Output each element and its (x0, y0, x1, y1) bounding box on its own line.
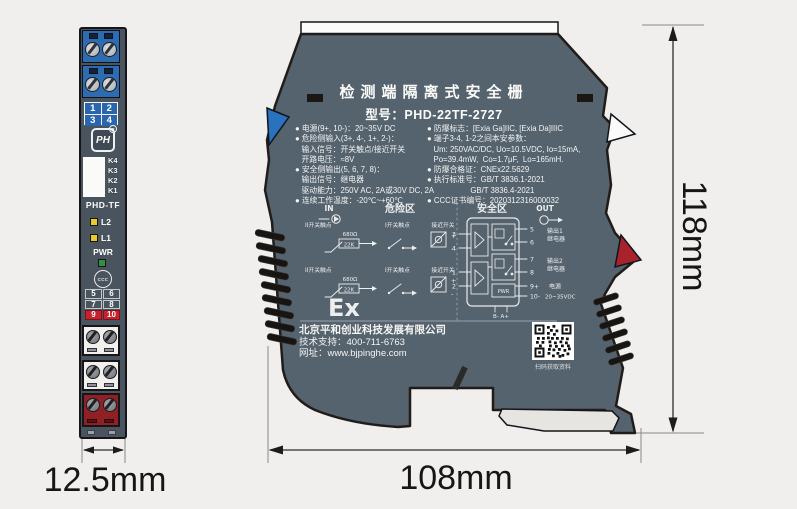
din-tab (87, 430, 95, 435)
pwr-label: PWR (79, 247, 127, 257)
terminal-number-plate: 1 2 3 4 (84, 102, 118, 125)
spec-line: GB/T 3836.4-2021 (427, 186, 580, 196)
power-terminal-block (82, 393, 120, 427)
terminal-2: 2 (452, 283, 456, 291)
wire-slot (89, 33, 98, 39)
resistor-22k-label: 22K (344, 243, 355, 249)
ccc-text: CCC (98, 277, 109, 282)
terminal-8: 8 (530, 270, 534, 277)
l2-label: L2 (101, 217, 111, 227)
front-model-text: PHD-TF (79, 200, 127, 210)
terminal-number: 7 (85, 300, 102, 310)
specs-left-column: ● 电源(9+, 10-)：20~35V DC ● 危险侧输入(3+, 4-, … (295, 124, 434, 206)
spec-line: ● 防爆标志：[Exia Ga]IIC, [Exia Da]IIIC (427, 124, 580, 134)
specs-right-column: ● 防爆标志：[Exia Ga]IIC, [Exia Da]IIIC ● 端子3… (427, 124, 580, 206)
terminal-9: 9+ (530, 284, 539, 291)
spec-line: ● 端子3-4, 1-2之间本安参数： (427, 134, 580, 144)
qr-caption: 扫码获取资料 (524, 362, 582, 371)
contact-1-label: I开关触点 (385, 266, 410, 274)
bottom-terminal-block-1 (82, 325, 120, 356)
company-info: 北京平和创业科技发展有限公司 技术支持：400-711-6763 网址：www.… (299, 325, 446, 360)
terminal-number: 6 (103, 289, 120, 299)
terminal-4: 4 (452, 245, 456, 253)
terminal-10: 10- (530, 294, 540, 301)
pwr-led-icon (98, 259, 106, 267)
din-top-edge (301, 22, 558, 34)
spec-line: 输入信号：开关触点/接近开关 (295, 145, 434, 155)
support-phone: 技术支持：400-711-6763 (299, 337, 446, 349)
relay-label: K1 (108, 186, 126, 196)
terminal-screw (102, 77, 117, 92)
contact-2-label: II开关触点 (305, 266, 332, 274)
website: 网址：www.bjpinghe.com (299, 348, 446, 360)
terminal-screw (103, 365, 117, 379)
power-label: 电源 (549, 283, 561, 291)
spec-line: Um: 250VAC/DC, Uo=10.5VDC, Io=15mA, (427, 145, 580, 155)
wire-slot (104, 348, 114, 352)
spec-line: Po=39.4mW, Co=1.7μF, Lo=165mH. (427, 155, 580, 165)
dim-side-width: 108mm (382, 459, 530, 498)
terminal-1: 1 (452, 269, 456, 277)
relay-label: K4 (108, 156, 126, 166)
spec-line: ● CCC证书编号：2020312316000032 (427, 196, 580, 206)
resistor-22k-label: 22K (344, 288, 355, 294)
spec-line: ● 危险侧输入(3+, 4-, 1+, 2-)： (295, 134, 434, 144)
terminal-6: 6 (530, 240, 534, 247)
vent-slot (577, 94, 593, 102)
write-in-label (83, 157, 105, 197)
terminal-screw (103, 330, 117, 344)
brand-logo-text: PH (96, 135, 110, 146)
terminal-screw (86, 365, 100, 379)
spec-line: ● 防爆合格证：CNEx22.5629 (427, 165, 580, 175)
registered-mark-icon: R (109, 125, 117, 133)
output2-label: 输出2 (547, 257, 563, 265)
contact-1-label: I开关触点 (385, 221, 410, 229)
terminal-screw (85, 42, 100, 57)
power-terminal-number: 9 (85, 310, 102, 320)
wire-slot (87, 348, 97, 352)
terminal-number: 8 (103, 300, 120, 310)
terminal-screw (85, 77, 100, 92)
qr-code (532, 322, 574, 360)
terminal-3: 3 (452, 231, 456, 239)
top-terminal-block-2 (82, 65, 120, 98)
wire-slot (89, 68, 98, 74)
terminal-number: 2 (102, 103, 118, 114)
led-l2: L2 (90, 217, 111, 227)
brand-logo: PH R (91, 128, 115, 152)
terminal-screw (86, 330, 100, 344)
resistor-680-label: 680Ω (343, 232, 358, 238)
led-l1: L1 (90, 233, 111, 243)
relay-label: K2 (108, 176, 126, 186)
bus-label: B- A+ (493, 314, 509, 320)
company-name: 北京平和创业科技发展有限公司 (299, 325, 446, 337)
terminal-screw (86, 398, 100, 412)
power-range-label: 20~35VDC (545, 295, 576, 301)
wire-slot (104, 383, 114, 387)
terminal-7: 7 (530, 257, 534, 264)
terminal-screw (102, 42, 117, 57)
terminal-5: 5 (530, 227, 534, 234)
pwr-box-label: PWR (498, 289, 510, 295)
dim-front-width: 12.5mm (30, 461, 180, 500)
spec-line: 驱动能力：250V AC, 2A或30V DC, 2A (295, 186, 434, 196)
spec-line: 开路电压：≈8V (295, 155, 434, 165)
contact-2-label: II开关触点 (305, 221, 332, 229)
wire-slot (87, 383, 97, 387)
output2-relay-label: 继电器 (547, 265, 565, 273)
terminal-number: 4 (102, 115, 118, 126)
wire-slot (104, 419, 114, 423)
terminal-screw (103, 398, 117, 412)
l1-led-icon (90, 234, 98, 242)
terminal-number: 1 (85, 103, 101, 114)
spec-line: ● 电源(9+, 10-)：20~35V DC (295, 124, 434, 134)
dim-side-height: 118mm (676, 178, 712, 294)
output1-relay-label: 继电器 (547, 235, 565, 243)
product-model: 型号：PHD-22TF-2727 (300, 104, 568, 123)
din-tab (108, 430, 116, 435)
wire-slot (87, 419, 97, 423)
relay-label: K3 (108, 166, 126, 176)
l2-led-icon (90, 218, 98, 226)
terminal-numbers-mid: 5 6 7 8 9 10 (85, 289, 120, 320)
product-dimension-diagram: 1 2 3 4 PH R K4 K3 K2 K1 PHD-TF L2 L1 PW… (0, 0, 797, 509)
spec-line: ● 安全侧输出(5, 6, 7, 8)： (295, 165, 434, 175)
proximity-switch-label: 接近开关 (431, 221, 454, 229)
resistor-680-label: 680Ω (343, 277, 358, 283)
white-coding-tab (607, 114, 635, 142)
front-view: 1 2 3 4 PH R K4 K3 K2 K1 PHD-TF L2 L1 PW… (79, 27, 127, 439)
relay-labels: K4 K3 K2 K1 (108, 156, 126, 196)
top-terminal-block-1 (82, 30, 120, 63)
output1-label: 输出1 (547, 227, 563, 235)
din-latch (499, 409, 619, 431)
spec-line: ● 连续工作温度：-20℃~+60℃ (295, 196, 434, 206)
ccc-mark: CCC (94, 270, 112, 288)
terminal-number: 3 (85, 115, 101, 126)
ex-mark: Ex (328, 294, 360, 322)
bottom-terminal-block-2 (82, 360, 120, 391)
terminal-number: 5 (85, 289, 102, 299)
spec-line: 输出信号：继电器 (295, 175, 434, 185)
wire-slot (104, 68, 113, 74)
power-terminal-number: 10 (103, 310, 120, 320)
l1-label: L1 (101, 233, 111, 243)
product-title: 检测端隔离式安全栅 (300, 81, 568, 102)
wire-slot (104, 33, 113, 39)
spec-line: ● 执行标准号：GB/T 3836.1-2021 (427, 175, 580, 185)
